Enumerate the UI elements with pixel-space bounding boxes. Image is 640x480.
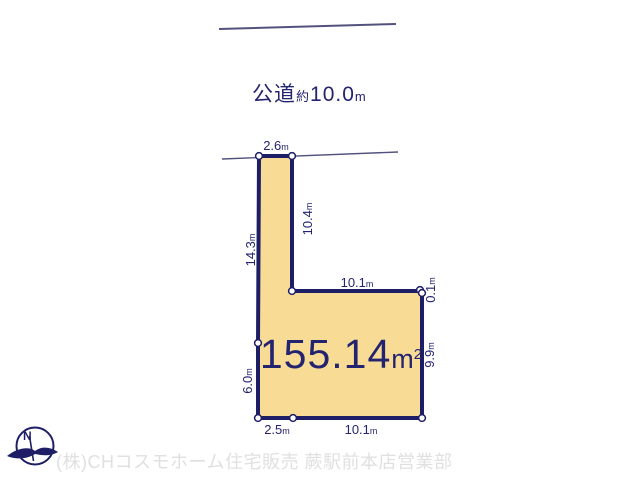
- dim-flagpole-right: 10.4m: [300, 189, 316, 249]
- road-width-unit: m: [355, 89, 367, 104]
- dim-top-frontage: 2.6m: [246, 138, 306, 154]
- area-label: 155.14m2: [256, 331, 426, 377]
- land-plot-diagram: N 公道約10.0m 2.6m 14.3m 10.4m 10.1m 0.1m 9…: [0, 0, 640, 480]
- road-approx: 約: [296, 89, 310, 104]
- road-edge-line: [219, 24, 396, 29]
- vertex-dot: [290, 415, 297, 422]
- vertex-dot: [255, 415, 262, 422]
- vertex-dot: [419, 415, 426, 422]
- dim-bottom-left: 2.5m: [247, 422, 307, 438]
- dim-right-jog: 0.1m: [423, 260, 439, 320]
- area-value: 155.14: [260, 331, 391, 377]
- vertex-dot: [289, 288, 296, 295]
- road-name: 公道: [252, 83, 296, 106]
- plot-drawing: N: [0, 0, 640, 480]
- dim-left-upper: 14.3m: [243, 220, 259, 280]
- dim-bottom-right: 10.1m: [331, 422, 391, 438]
- compass-icon: N: [7, 428, 58, 465]
- dim-left-lower: 6.0m: [240, 351, 256, 411]
- road-caption: 公道約10.0m: [252, 78, 367, 108]
- compass-north-label: N: [23, 429, 32, 443]
- dim-inner-horizontal: 10.1m: [327, 275, 387, 291]
- area-unit: m2: [391, 344, 422, 374]
- road-width-value: 10.0: [310, 83, 355, 106]
- footer-company-name: (株)CHコスモホーム住宅販売 蕨駅前本店営業部: [56, 448, 616, 474]
